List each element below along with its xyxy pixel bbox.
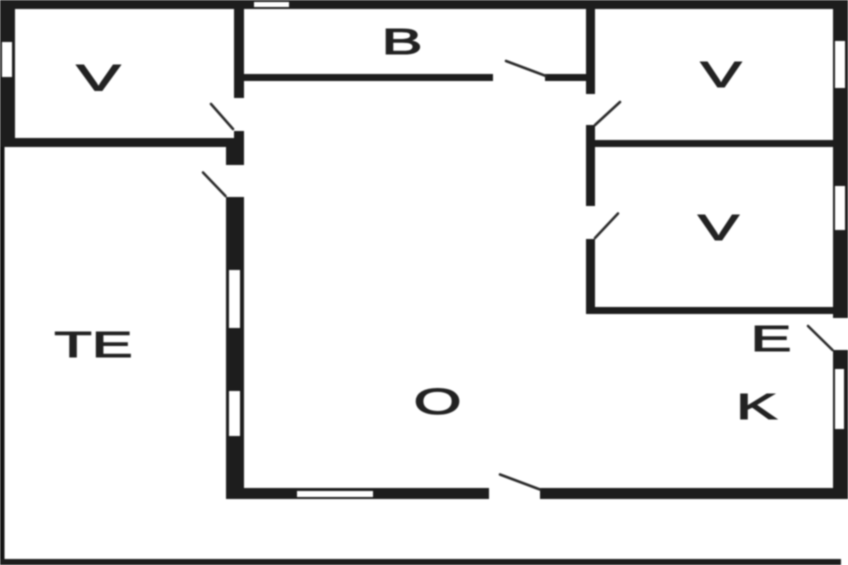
svg-text:O: O <box>414 382 462 422</box>
svg-text:K: K <box>736 387 777 427</box>
svg-text:V: V <box>701 55 742 95</box>
svg-text:E: E <box>751 319 792 359</box>
svg-text:V: V <box>698 208 739 248</box>
svg-text:TE: TE <box>54 325 132 365</box>
svg-text:B: B <box>382 22 423 62</box>
svg-text:V: V <box>77 58 121 99</box>
